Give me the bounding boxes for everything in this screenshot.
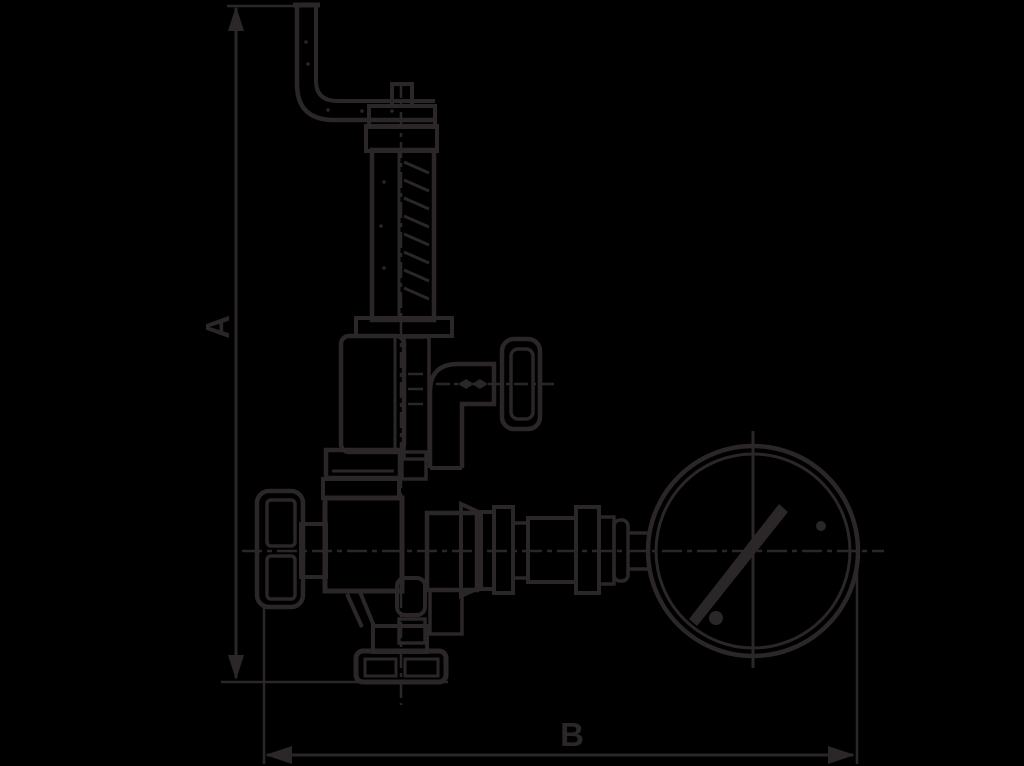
dimension-b-arrow-right (828, 746, 855, 764)
main-handwheel (257, 491, 303, 607)
mid-flange (326, 450, 426, 479)
lever-inner-wall (316, 7, 435, 101)
main-handwheel-spoke-bottom (267, 556, 295, 599)
gauge-screw-dot-right (816, 521, 826, 531)
funnel-inner-wall (360, 592, 374, 626)
outlet-column-lower (399, 619, 425, 643)
dimension-a-arrow-bottom (228, 655, 244, 680)
centerlines (242, 82, 884, 705)
main-body (301, 479, 477, 634)
lever-texture-dot (304, 40, 308, 44)
upper-body (341, 336, 429, 459)
main-handwheel-spoke-top (267, 500, 295, 546)
bonnet-texture-dot (382, 266, 386, 270)
dimension-b-arrow-left (265, 746, 292, 764)
dimension-b-label: B (560, 716, 584, 753)
valve-technical-drawing: A B (0, 0, 1024, 766)
spring-coil (404, 162, 429, 299)
lever-texture-dot (306, 62, 310, 66)
dimension-a-arrow-top (228, 6, 244, 31)
body-top-plate (323, 479, 399, 498)
bottom-flange-inner-left (365, 659, 396, 676)
body-right-lower-block (430, 590, 462, 634)
gauge-screw-dot-left (709, 611, 723, 625)
lever-texture-dot (390, 109, 394, 113)
lever-texture-dot (360, 109, 364, 113)
funnel-outer-wall (347, 594, 362, 627)
pressure-gauge (648, 431, 858, 668)
dimension-b: B (264, 556, 857, 764)
bonnet-texture-dot (382, 180, 386, 184)
dimension-a-label: A (199, 315, 236, 339)
centerline-diamond-mark (458, 379, 474, 389)
bonnet-texture-dot (379, 224, 383, 228)
drawing-canvas: A B (0, 0, 1024, 766)
centerline-diamond-mark (472, 379, 488, 389)
gauge-needle (689, 504, 788, 626)
outlet-elbow (430, 364, 494, 468)
bonnet-housing (372, 150, 434, 320)
main-body-block (325, 498, 402, 591)
bottom-flange-inner-right (405, 659, 438, 676)
spindle-column (404, 337, 429, 459)
lever-texture-dot (326, 108, 330, 112)
spring-bonnet (356, 150, 452, 336)
test-outlet-handwheel (430, 339, 540, 468)
